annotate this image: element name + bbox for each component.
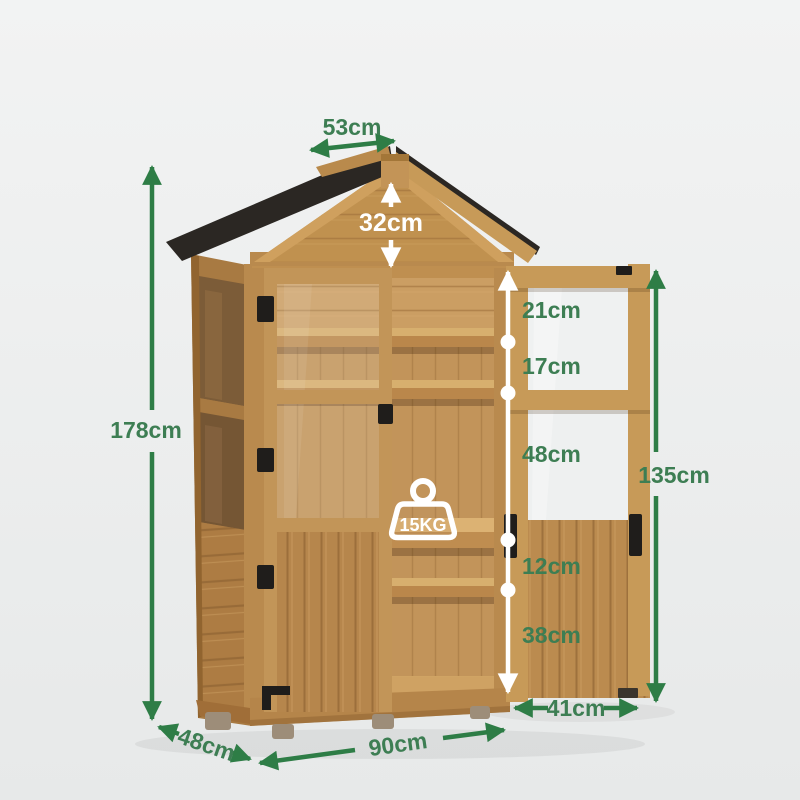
dim-roof-width-label: 53cm	[323, 114, 382, 140]
segment-dot-2	[501, 386, 516, 401]
dim-segment-2-label: 17cm	[522, 353, 581, 379]
dim-door-width-label: 41cm	[547, 695, 606, 721]
closed-glass-door	[257, 268, 393, 712]
dim-gable-height-label: 32cm	[359, 209, 423, 237]
segment-dot-3	[501, 533, 516, 548]
dim-door-height-label: 135cm	[638, 462, 710, 488]
segment-dot-4	[501, 583, 516, 598]
dim-segment-5-label: 38cm	[522, 622, 581, 648]
dim-segment-4-label: 12cm	[522, 553, 581, 579]
segment-dot-1	[501, 335, 516, 350]
dim-segment-1-label: 21cm	[522, 297, 581, 323]
product-dimension-diagram: 53cm 32cm 178cm 21cm 17cm 48cm 12cm 38cm	[0, 0, 800, 800]
scene: 53cm 32cm 178cm 21cm 17cm 48cm 12cm 38cm	[0, 0, 800, 800]
dim-total-height-label: 178cm	[110, 417, 182, 443]
weight-badge-label: 15KG	[399, 515, 446, 535]
cabinet-left-side-panel	[191, 254, 256, 730]
dim-segment-3-label: 48cm	[522, 441, 581, 467]
door-latch	[378, 404, 393, 424]
